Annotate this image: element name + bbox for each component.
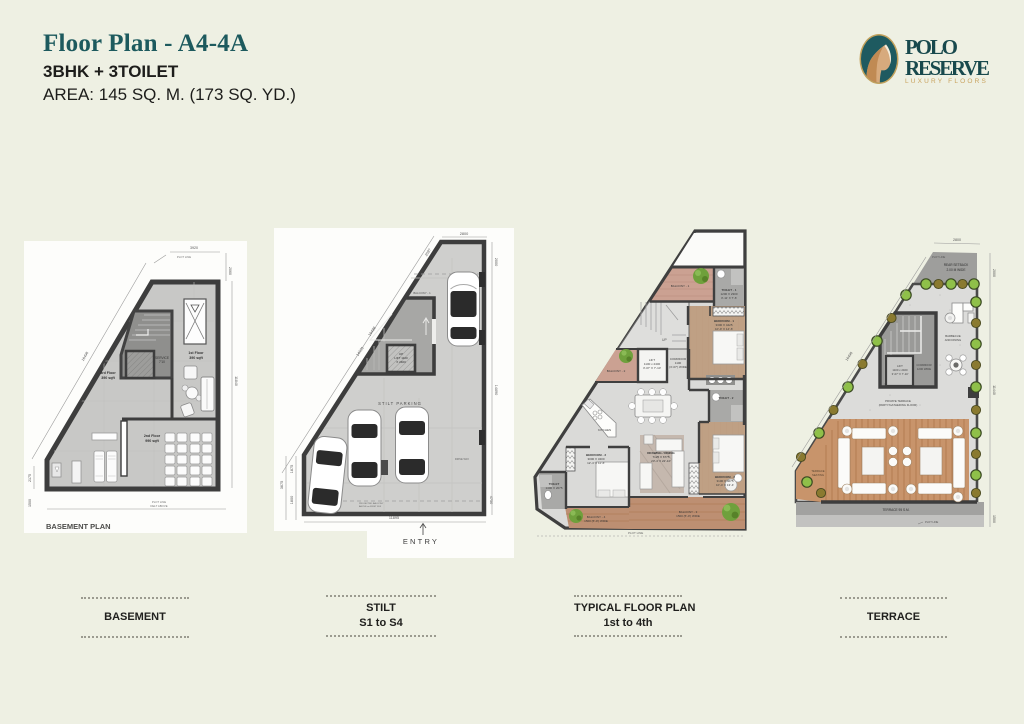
svg-text:3920: 3920 xyxy=(190,246,198,250)
svg-text:390 sqft: 390 sqft xyxy=(189,356,203,360)
svg-text:PLOT LINE: PLOT LINE xyxy=(925,520,938,524)
svg-text:SEATING: SEATING xyxy=(812,473,824,477)
svg-text:TERRACE 95 S.M.: TERRACE 95 S.M. xyxy=(882,508,909,512)
svg-text:STILT PARKING: STILT PARKING xyxy=(378,401,422,406)
svg-text:2.00 M WIDE: 2.00 M WIDE xyxy=(947,268,966,272)
svg-text:2060: 2060 xyxy=(228,267,232,275)
svg-text:REAR SETBACK: REAR SETBACK xyxy=(944,263,969,267)
svg-text:1500 (5'-0') WIDE: 1500 (5'-0') WIDE xyxy=(584,519,608,523)
svg-text:12'-4' X 11'-6': 12'-4' X 11'-6' xyxy=(587,461,605,465)
svg-text:2800: 2800 xyxy=(460,232,468,236)
svg-text:2000: 2000 xyxy=(992,269,996,277)
svg-text:PLOT LINE: PLOT LINE xyxy=(628,531,643,535)
svg-text:PLOT LINE: PLOT LINE xyxy=(177,255,191,259)
svg-text:11440: 11440 xyxy=(992,385,996,395)
svg-text:1500: 1500 xyxy=(28,499,32,507)
svg-text:1875: 1875 xyxy=(290,465,294,473)
svg-text:RESERVE: RESERVE xyxy=(905,56,990,80)
svg-text:BALCONY - 2: BALCONY - 2 xyxy=(607,369,626,373)
svg-text:AND DINING: AND DINING xyxy=(945,338,961,342)
svg-text:2175: 2175 xyxy=(28,474,32,482)
svg-text:TOILET - 2: TOILET - 2 xyxy=(719,396,734,400)
svg-text:16498: 16498 xyxy=(81,351,89,362)
svg-text:BALCONY - 1: BALCONY - 1 xyxy=(413,291,431,295)
svg-text:3'-07' X 7'-10': 3'-07' X 7'-10' xyxy=(643,366,661,370)
svg-text:10'-4' X 13'-4': 10'-4' X 13'-4' xyxy=(716,483,734,487)
svg-text:PROJECTED BALCONY: PROJECTED BALCONY xyxy=(359,502,384,505)
svg-text:390 sqft: 390 sqft xyxy=(101,376,115,380)
svg-text:3'-11' X 7'-6': 3'-11' X 7'-6' xyxy=(721,296,738,300)
svg-text:16498: 16498 xyxy=(368,326,377,337)
svg-text:14101: 14101 xyxy=(356,346,365,357)
svg-text:1500 (5'-0') WIDE: 1500 (5'-0') WIDE xyxy=(676,514,700,518)
svg-text:10'-9' X 14'-6': 10'-9' X 14'-6' xyxy=(715,327,733,331)
svg-text:DELT ABOVE: DELT ABOVE xyxy=(150,504,167,508)
svg-text:(PARTY/GATHERING FLOOR): (PARTY/GATHERING FLOOR) xyxy=(879,403,918,407)
svg-text:7'10: 7'10 xyxy=(159,360,165,364)
svg-text:KITCHEN: KITCHEN xyxy=(598,428,611,432)
svg-text:(3'-07') WIDE: (3'-07') WIDE xyxy=(669,365,687,369)
svg-text:1200 WIDE: 1200 WIDE xyxy=(917,367,931,371)
svg-text:1400 X 2075: 1400 X 2075 xyxy=(545,486,562,490)
svg-text:14690: 14690 xyxy=(494,385,498,396)
svg-text:BALCONY - 1: BALCONY - 1 xyxy=(671,284,690,288)
svg-text:3rd Floor: 3rd Floor xyxy=(100,371,116,375)
svg-text:990 sqft: 990 sqft xyxy=(145,439,159,443)
svg-text:2000: 2000 xyxy=(494,258,498,266)
svg-text:1st Floor: 1st Floor xyxy=(188,351,204,355)
svg-text:2nd Floor: 2nd Floor xyxy=(144,434,161,438)
svg-text:1800: 1800 xyxy=(290,496,294,504)
svg-text:DRIVE WAY: DRIVE WAY xyxy=(455,457,470,461)
svg-text:16498: 16498 xyxy=(845,351,854,362)
svg-text:11840: 11840 xyxy=(234,376,238,386)
svg-text:23'-4' X 22'-10': 23'-4' X 22'-10' xyxy=(651,459,671,463)
svg-text:3'-07' X 7'-10': 3'-07' X 7'-10' xyxy=(892,372,909,376)
svg-text:1500: 1500 xyxy=(992,515,996,523)
svg-text:PLOT LINE: PLOT LINE xyxy=(932,255,945,259)
svg-text:LUXURY FLOORS: LUXURY FLOORS xyxy=(905,78,988,85)
svg-text:3675: 3675 xyxy=(280,481,284,489)
svg-text:ABOVE on FIRST FLR: ABOVE on FIRST FLR xyxy=(359,505,382,508)
svg-text:4750: 4750 xyxy=(489,496,493,504)
svg-text:X 2400: X 2400 xyxy=(396,360,406,364)
svg-text:BASEMENT PLAN: BASEMENT PLAN xyxy=(46,522,111,531)
svg-text:11895: 11895 xyxy=(389,516,399,520)
svg-text:2800: 2800 xyxy=(953,238,961,242)
svg-text:UP: UP xyxy=(662,338,667,342)
